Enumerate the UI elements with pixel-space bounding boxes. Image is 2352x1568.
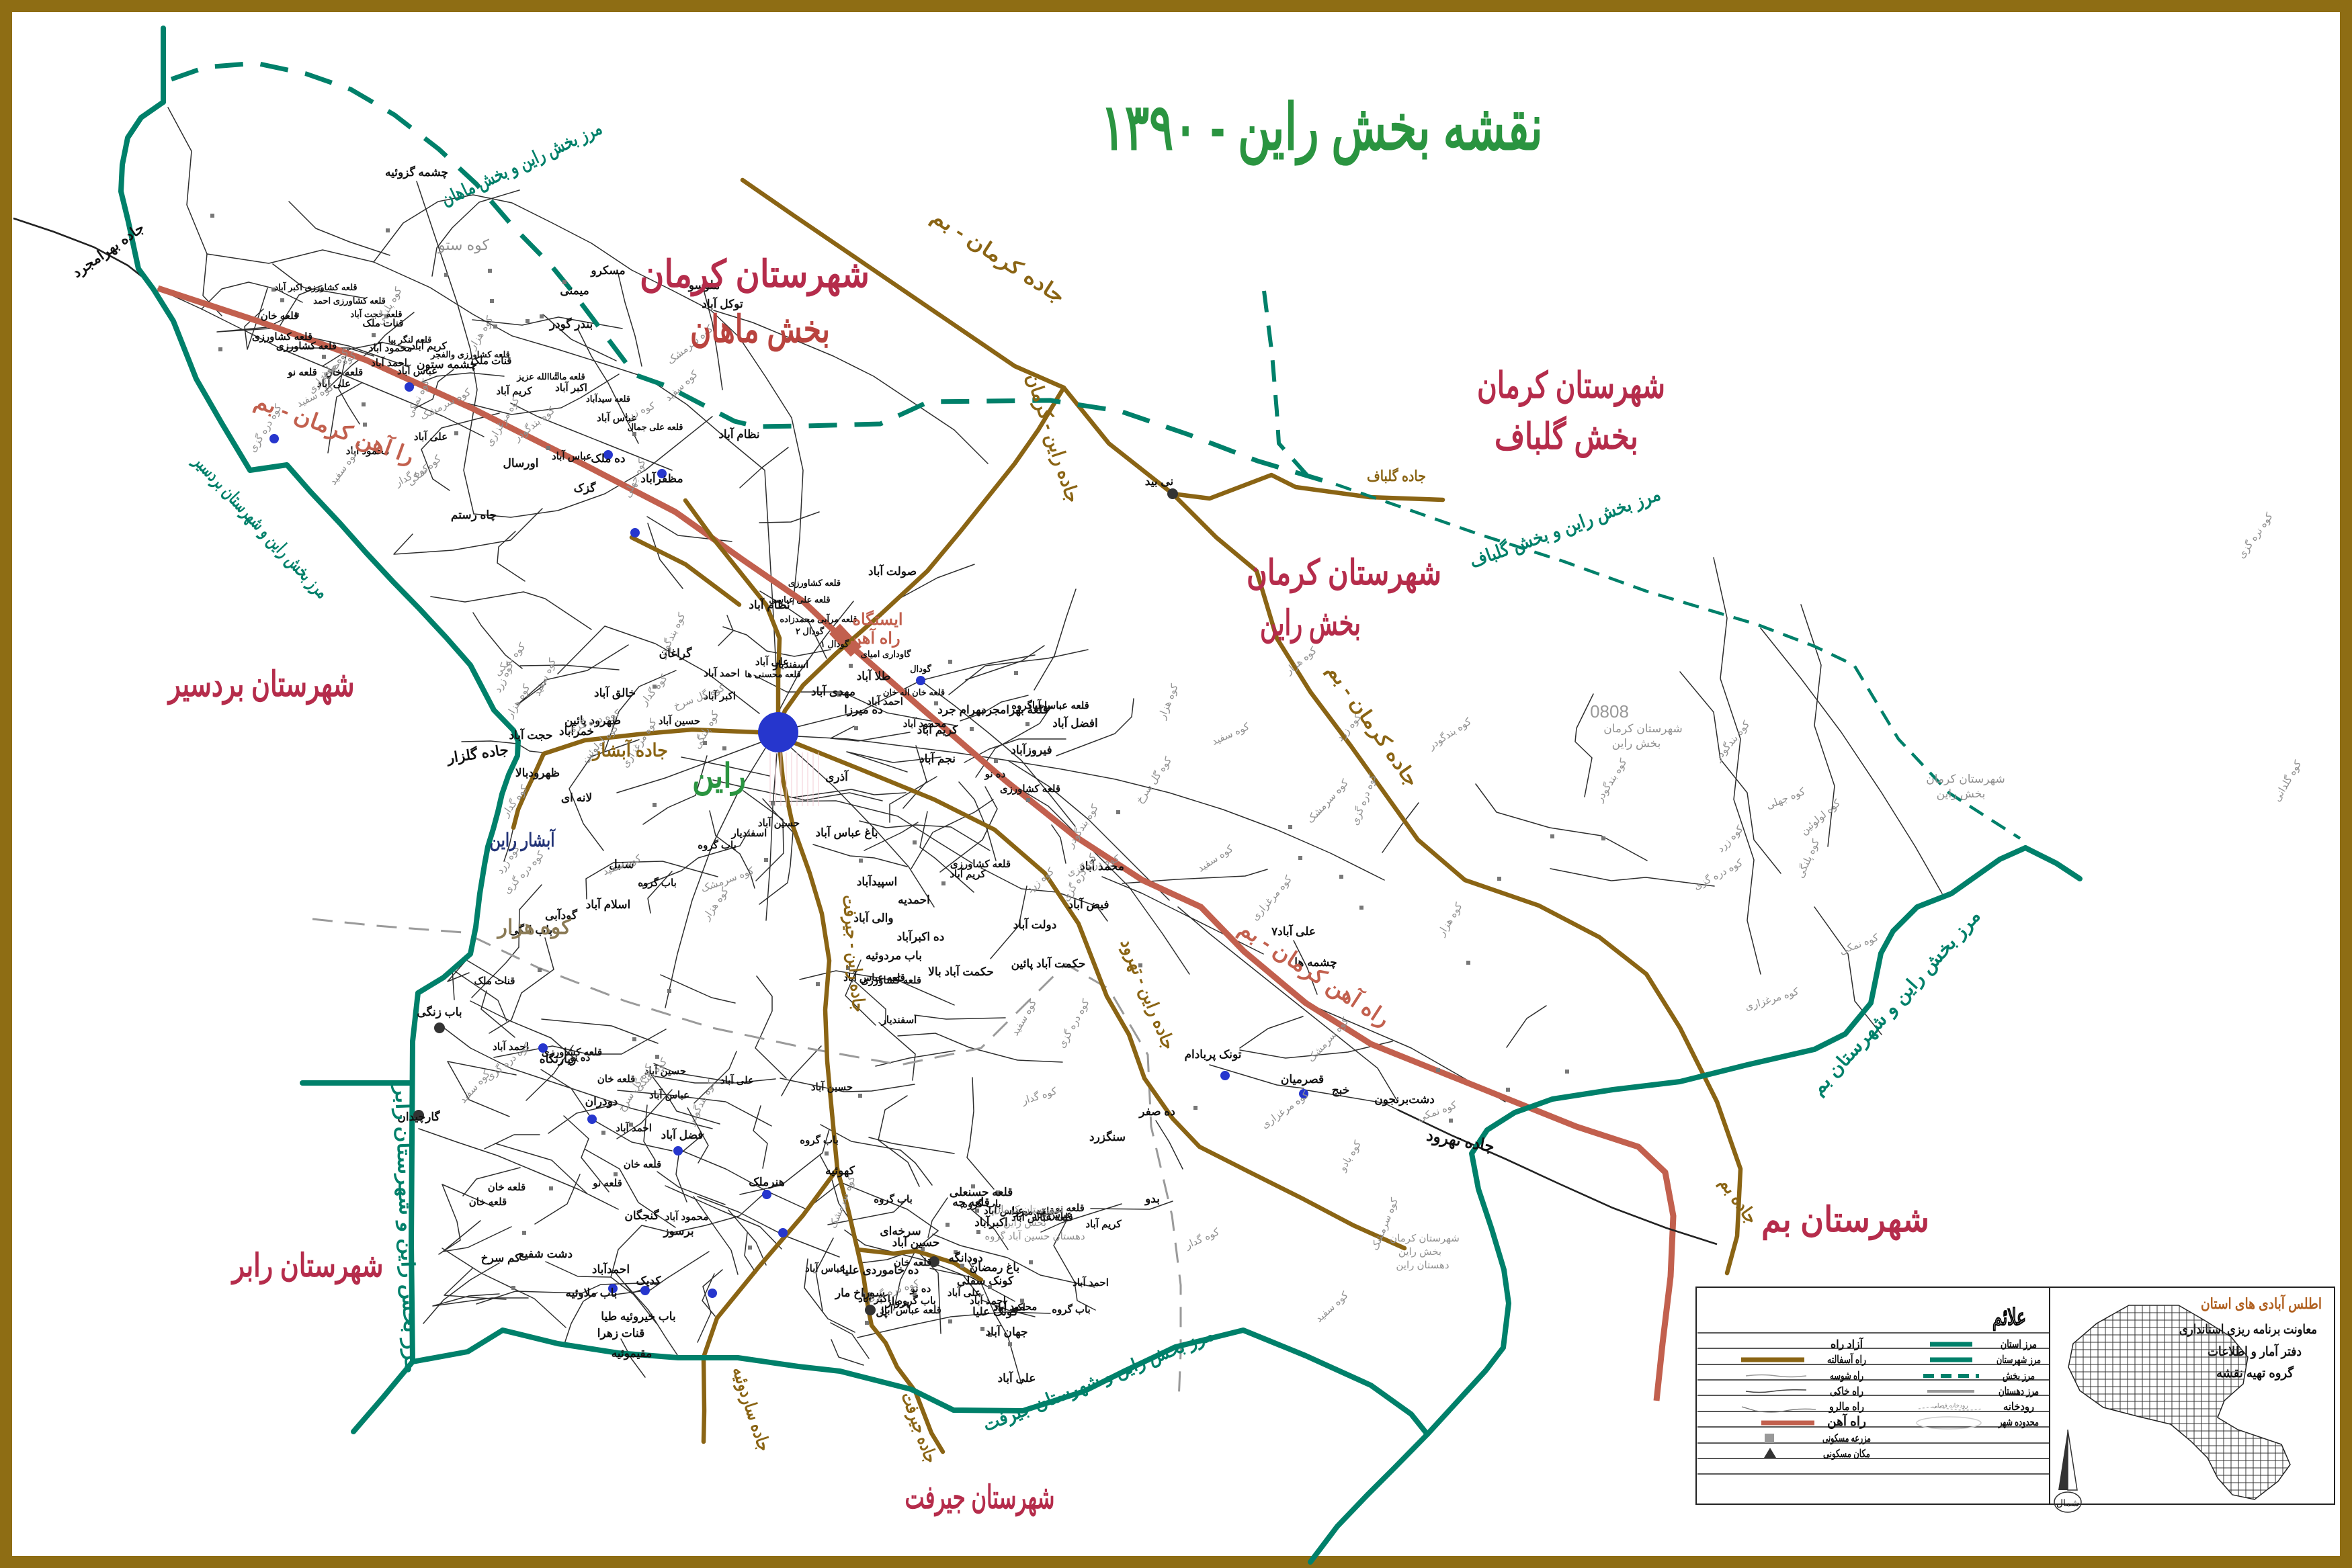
svg-text:قصرمیان: قصرمیان [1281,1073,1324,1086]
svg-text:خبج: خبج [1332,1084,1350,1097]
svg-text:مهدی آباد: مهدی آباد [811,684,855,699]
svg-text:حکمت آباد پائین: حکمت آباد پائین [1011,956,1086,971]
svg-text:افضل آباد: افضل آباد [1052,715,1097,730]
svg-text:قلعه مرآبی محمدزاده: قلعه مرآبی محمدزاده [780,613,857,625]
svg-text:رودخانه: رودخانه [2003,1401,2034,1413]
svg-text:چشمه گزوئیه: چشمه گزوئیه [385,165,448,179]
svg-text:صولت آباد: صولت آباد [868,564,917,578]
svg-text:احمدآباد: احمدآباد [592,1262,630,1276]
svg-text:آذری: آذری [825,769,849,784]
svg-text:بدو: بدو [1144,1192,1160,1206]
svg-text:قلعه خان: قلعه خان [488,1182,526,1193]
svg-text:گودال ۲: گودال ۲ [796,625,825,637]
svg-text:محمود آباد: محمود آباد [369,341,413,354]
svg-text:کریم آباد: کریم آباد [950,867,986,880]
svg-text:گنجگان: گنجگان [624,1209,659,1222]
svg-text:ده نو: ده نو [984,769,1006,780]
svg-text:ده اکبرآباد: ده اکبرآباد [897,929,945,944]
svg-text:آبشار راین: آبشار راین [490,828,556,852]
svg-text:بخش راین: بخش راین [1398,1246,1441,1258]
svg-text:علی آباد: علی آباد [720,1074,754,1086]
svg-text:اطلس آبادی های استان: اطلس آبادی های استان [2201,1294,2322,1313]
svg-text:اسفندیار: اسفندیار [773,659,809,670]
svg-text:علائم: علائم [1992,1305,2026,1331]
svg-text:قلعه کشاورزی احمد: قلعه کشاورزی احمد [313,296,386,306]
svg-text:مرز شهرستان: مرز شهرستان [1997,1354,2041,1366]
svg-text:حسین آباد: حسین آباد [811,1080,853,1093]
svg-text:قلعه سیدآباد: قلعه سیدآباد [586,393,630,404]
svg-text:دشت شفیع: دشت شفیع [519,1248,573,1261]
svg-text:قلعه کشاورزی: قلعه کشاورزی [788,578,841,589]
svg-text:دولت آباد: دولت آباد [1013,917,1057,932]
svg-text:مسکرو: مسکرو [589,264,625,277]
svg-text:قلعه محسنی ها: قلعه محسنی ها [745,669,801,679]
svg-text:قلعه خان: قلعه خان [469,1196,507,1208]
svg-text:شهرستان کرمان: شهرستان کرمان [1247,554,1441,594]
svg-text:شهرستان کرمان: شهرستان کرمان [1603,722,1682,736]
svg-text:دودران: دودران [585,1095,618,1108]
svg-text:باب گروه: باب گروه [897,1295,936,1307]
svg-text:بهرام جرد: بهرام جرد [937,703,984,717]
svg-text:جاده آبشار: جاده آبشار [591,738,668,762]
svg-text:قلعه خان: قلعه خان [261,310,298,322]
svg-text:لانه ای: لانه ای [561,791,592,804]
svg-text:کوه هزار: کوه هزار [496,916,571,939]
svg-text:اسپیدآباد: اسپیدآباد [857,874,897,889]
svg-text:نقشه بخش راین - ۱۳۹۰: نقشه بخش راین - ۱۳۹۰ [1101,92,1543,166]
svg-text:قنات زهرا: قنات زهرا [597,1327,644,1340]
svg-text:ده نو: ده نو [569,1052,591,1063]
svg-text:بخش گلباف: بخش گلباف [1495,415,1638,459]
svg-text:قلعه حسنعلی: قلعه حسنعلی [950,1186,1013,1199]
svg-text:اکبر آباد: اکبر آباد [555,381,587,394]
svg-text:قلعه خان: قلعه خان [624,1159,661,1170]
svg-text:گودال ۱: گودال ۱ [821,638,849,650]
svg-text:چاه رستم: چاه رستم [451,509,497,522]
svg-text:شهرستان کرمان: شهرستان کرمان [993,1204,1063,1215]
svg-text:گودال: گودال [910,663,932,674]
svg-text:سرخه‌ای: سرخه‌ای [880,1225,921,1238]
svg-text:نظام آباد: نظام آباد [718,427,759,441]
svg-text:جاده گلباف: جاده گلباف [1367,467,1426,484]
svg-text:محدوده شهر: محدوده شهر [1998,1417,2039,1429]
svg-text:کدیک: کدیک [636,1274,662,1287]
svg-text:فضل آباد: فضل آباد [661,1127,704,1141]
svg-text:احمد آباد: احمد آباد [1073,1276,1109,1289]
svg-text:دودانگه: دودانگه [948,1251,982,1265]
svg-text:طلا آباد: طلا آباد [857,668,891,683]
svg-text:گاوداری امیای: گاوداری امیای [861,648,911,660]
svg-text:احمد آباد: احمد آباد [867,695,903,707]
svg-text:احمدیه: احمدیه [898,894,930,906]
svg-text:اکبر آباد: اکبر آباد [993,1301,1025,1313]
svg-text:آزاد راه: آزاد راه [1831,1336,1864,1351]
svg-text:قلعه نو: قلعه نو [287,367,317,378]
svg-text:تونک پربادام: تونک پربادام [1184,1048,1241,1061]
svg-text:احمد آباد: احمد آباد [704,666,740,679]
svg-text:مرز دهستان: مرز دهستان [1999,1386,2039,1398]
svg-text:علی آباد: علی آباد [998,1370,1036,1385]
svg-text:علی آباد: علی آباد [414,430,448,443]
svg-text:بخش ماهان: بخش ماهان [690,308,830,352]
svg-text:گروه تهیه نقشه: گروه تهیه نقشه [2216,1365,2294,1381]
svg-text:شهرستان کرمان: شهرستان کرمان [1390,1233,1460,1244]
svg-text:باب گروه: باب گروه [874,1193,913,1205]
svg-text:مکان مسکونی: مکان مسکونی [1823,1448,1870,1461]
svg-text:بندر گودر: بندر گودر [548,317,593,331]
svg-text:قلعه ماشاالله عزیز: قلعه ماشاالله عزیز [516,372,585,382]
svg-text:قلعه خان: قلعه خان [894,1257,931,1268]
svg-text:فیض آباد: فیض آباد [1068,897,1109,912]
svg-text:راه آهن: راه آهن [849,627,900,648]
svg-text:شهرستان بردسیر: شهرستان بردسیر [167,665,354,705]
svg-text:دهستان حسین آباد گروه: دهستان حسین آباد گروه [984,1230,1085,1242]
svg-text:باب گروه: باب گروه [800,1134,839,1146]
svg-text:راه شوسه: راه شوسه [1830,1370,1863,1383]
svg-text:قلعه کشاورزی: قلعه کشاورزی [861,975,921,986]
svg-text:هنرملک: هنرملک [749,1176,784,1189]
svg-text:کوه ستو: کوه ستو [437,236,489,254]
svg-text:حکمت آباد بالا: حکمت آباد بالا [928,964,994,978]
svg-text:باب گروه: باب گروه [1011,699,1050,711]
svg-text:جهان آباد: جهان آباد [986,1324,1028,1339]
svg-text:حسین آباد: حسین آباد [758,816,800,829]
svg-text:قلعه علی عباسی: قلعه علی عباسی [769,595,830,605]
svg-text:عباس آباد: عباس آباد [649,1088,689,1101]
svg-text:قلعه کشاورزی: قلعه کشاورزی [1000,783,1060,795]
svg-text:باب مردوئیه: باب مردوئیه [866,949,922,963]
svg-text:دشت‌برنجون: دشت‌برنجون [1374,1093,1435,1106]
svg-text:شهرستان کرمان: شهرستان کرمان [1477,365,1665,408]
svg-text:شهرستان کرمان: شهرستان کرمان [1926,773,2005,786]
svg-text:قلعه کشاورزی اکبر آباد: قلعه کشاورزی اکبر آباد [274,281,357,293]
svg-text:راه مالرو: راه مالرو [1829,1401,1864,1413]
svg-text:ده ملک: ده ملک [591,452,625,465]
svg-text:راه آسفالته: راه آسفالته [1827,1352,1866,1366]
svg-text:ایستگاه: ایستگاه [852,609,902,629]
svg-text:قنات ملک: قنات ملک [474,975,515,987]
svg-text:باغ عباس آباد: باغ عباس آباد [816,825,878,840]
svg-text:شهرستان جیرفت: شهرستان جیرفت [905,1480,1055,1517]
svg-text:حجت آباد: حجت آباد [509,728,552,742]
svg-text:کم سرخ: کم سرخ [481,1252,521,1265]
svg-text:گزک: گزک [574,481,597,495]
svg-text:مقیموئیه: مقیموئیه [612,1347,652,1360]
svg-text:نی بید: نی بید [1145,475,1173,488]
svg-text:شهرستان کرمان: شهرستان کرمان [640,253,870,297]
svg-text:عباس آباد: عباس آباد [397,364,437,377]
svg-text:بخش راین: بخش راین [1612,737,1661,750]
svg-text:دفتر آمار و اطلاعات: دفتر آمار و اطلاعات [2208,1343,2302,1359]
svg-text:احمد آباد: احمد آباد [616,1121,652,1134]
svg-text:قلعه نو: قلعه نو [592,1178,622,1189]
svg-text:باب خیروئیه طیا: باب خیروئیه طیا [601,1310,675,1323]
svg-text:اورسال: اورسال [503,457,539,470]
svg-text:بخش راین: بخش راین [1260,604,1361,644]
svg-text:باب گروه: باب گروه [1052,1303,1091,1315]
svg-text:محمود آباد: محمود آباد [903,717,947,730]
svg-text:راه آهن: راه آهن [1827,1413,1866,1429]
svg-text:قنات ملک: قنات ملک [471,355,512,367]
svg-text:عباس آباد: عباس آباد [552,449,592,462]
svg-text:اسفندیار: اسفندیار [881,1014,917,1026]
svg-text:ظهرودبالا: ظهرودبالا [515,767,560,780]
svg-text:دهستان راین: دهستان راین [1396,1260,1449,1271]
svg-text:کریم آباد: کریم آباد [1085,1217,1122,1230]
svg-text:کریم آباد: کریم آباد [496,384,532,397]
svg-text:بخش راین: بخش راین [1937,787,1986,801]
svg-text:اسلام آباد: اسلام آباد [586,897,631,912]
svg-text:فیروزآباد: فیروزآباد [1011,742,1052,757]
svg-text:کریم آباد: کریم آباد [411,339,447,352]
svg-text:نجم آباد: نجم آباد [919,751,956,766]
svg-text:خالق آباد: خالق آباد [594,685,636,700]
svg-text:کونک سفلی: کونک سفلی [957,1274,1014,1288]
svg-text:ده صفر: ده صفر [1138,1105,1175,1119]
svg-text:عباس آباد: عباس آباد [805,1262,845,1274]
svg-text:راه خاکی: راه خاکی [1830,1386,1863,1398]
svg-text:باب گروه: باب گروه [698,839,737,851]
svg-text:باب گروه: باب گروه [638,877,677,889]
svg-text:مزرعه مسکونی: مزرعه مسکونی [1822,1433,1871,1445]
svg-text:باب زنگی: باب زنگی [417,1005,462,1019]
svg-text:شمال: شمال [2056,1497,2079,1508]
svg-text:محمود آباد: محمود آباد [665,1210,709,1223]
svg-text:قلعه کشاورزی: قلعه کشاورزی [276,341,337,352]
svg-text:مرز بخش: مرز بخش [2003,1370,2035,1383]
svg-text:شهرستان بم: شهرستان بم [1761,1201,1929,1241]
svg-text:میمنی: میمنی [560,284,589,297]
svg-text:شهرستان رابر: شهرستان رابر [230,1248,383,1285]
svg-text:قلعه خان: قلعه خان [597,1074,635,1085]
svg-text:باب ملاوئیه: باب ملاوئیه [565,1287,617,1300]
svg-text:سنگزرد: سنگزرد [1089,1130,1126,1144]
svg-text:برسوز: برسوز [662,1225,694,1238]
svg-text:مظفرآباد: مظفرآباد [640,471,683,486]
svg-text:اسفندیار: اسفندیار [731,828,767,839]
svg-text:بخش راین: بخش راین [1003,1217,1046,1229]
svg-text:راین: راین [692,757,746,796]
svg-text:رودخانه فصلی: رودخانه فصلی [1932,1402,1968,1409]
svg-text:0808: 0808 [1590,701,1629,722]
svg-text:حسین آباد: حسین آباد [659,714,700,727]
svg-text:مرز استان: مرز استان [2001,1339,2037,1351]
